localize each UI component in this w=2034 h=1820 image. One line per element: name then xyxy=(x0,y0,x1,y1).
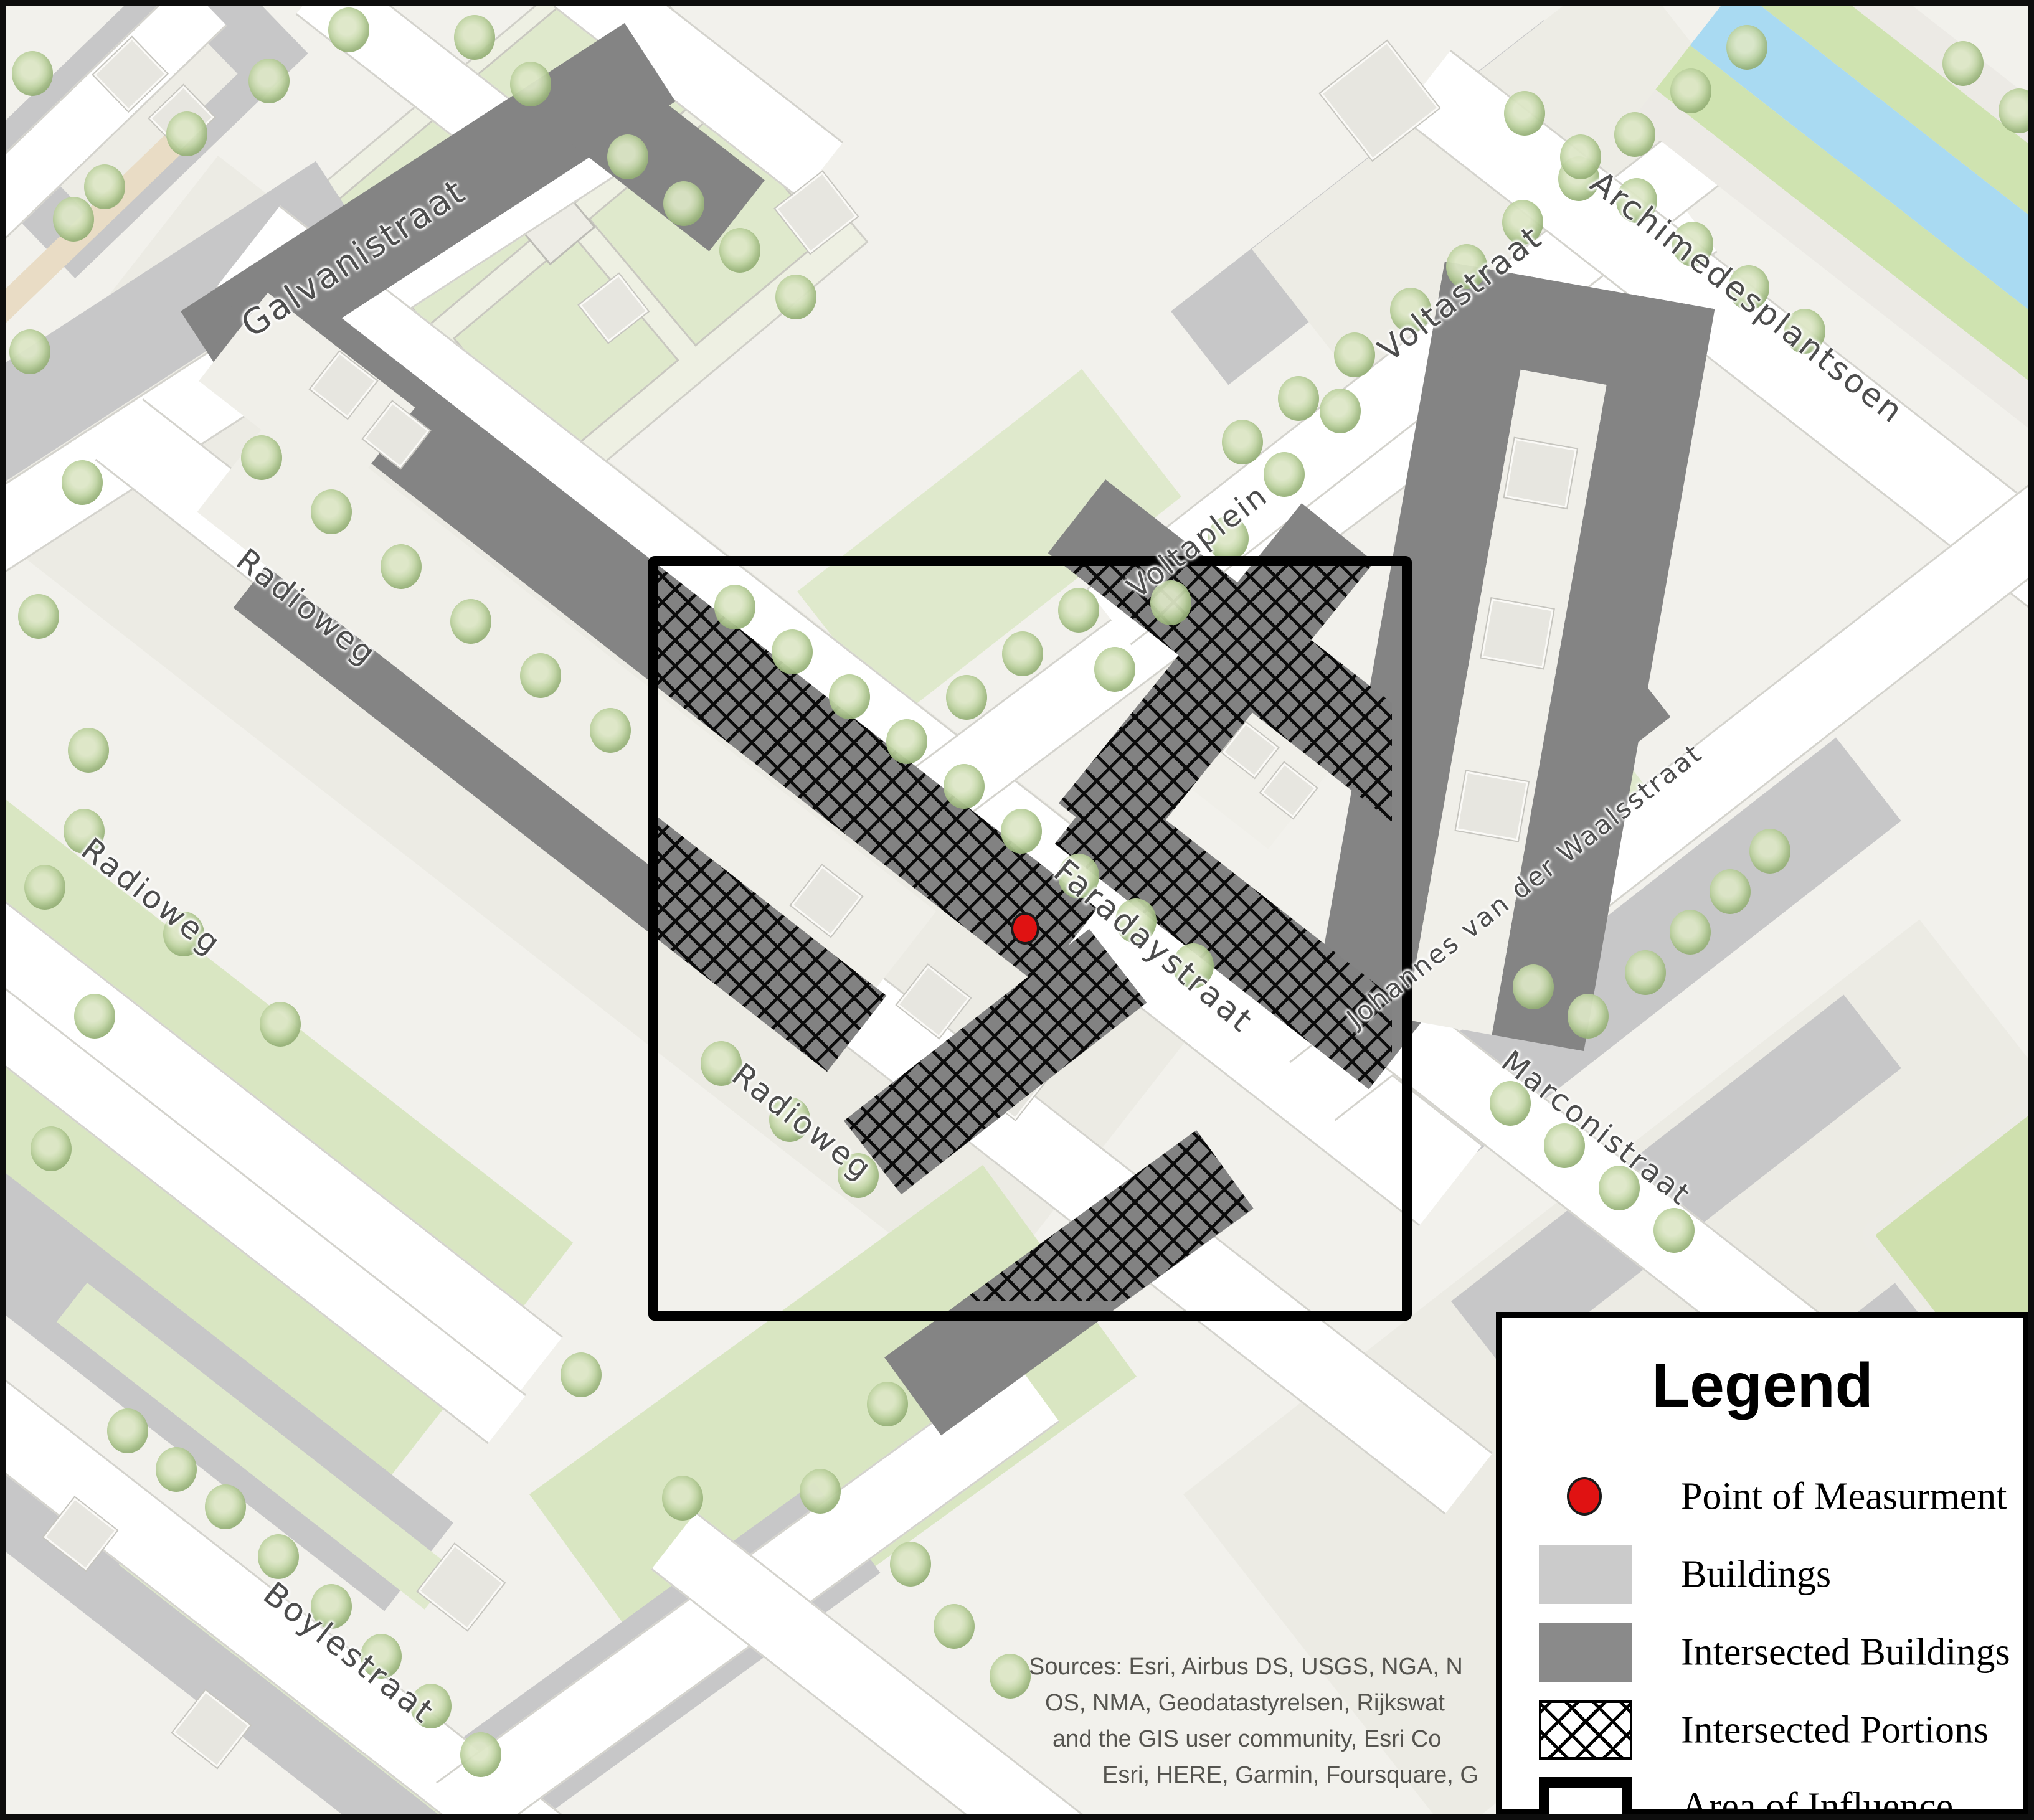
point-of-measurement-icon xyxy=(1567,1477,1602,1516)
tree-icon xyxy=(381,544,422,589)
tree-icon xyxy=(510,62,551,106)
tree-icon xyxy=(800,1469,841,1514)
tree-icon xyxy=(12,51,53,96)
tree-icon xyxy=(328,7,369,52)
tree-icon xyxy=(156,1447,197,1492)
attribution-line: Esri, HERE, Garmin, Foursquare, G xyxy=(1102,1762,1478,1789)
tree-icon xyxy=(260,1002,301,1047)
tree-icon xyxy=(1278,376,1319,421)
area-of-influence-swatch-icon xyxy=(1539,1777,1632,1820)
courtyard-building xyxy=(1505,438,1577,508)
tree-icon xyxy=(1264,452,1305,497)
tree-icon xyxy=(662,1476,703,1521)
tree-icon xyxy=(1710,869,1751,914)
legend-item-label: Area of Influence xyxy=(1681,1785,1953,1820)
tree-icon xyxy=(1942,41,1984,86)
tree-icon xyxy=(890,1542,931,1587)
tree-icon xyxy=(53,197,94,242)
map-canvas[interactable]: Sources: Esri, Airbus DS, USGS, NGA, N O… xyxy=(0,0,2034,1820)
point-of-measurement-dot xyxy=(1011,912,1039,945)
legend-item-label: Intersected Buildings xyxy=(1681,1631,2010,1675)
legend-title: Legend xyxy=(1502,1350,2023,1422)
tree-icon xyxy=(31,1126,72,1171)
tree-icon xyxy=(68,728,109,773)
tree-icon xyxy=(719,228,760,273)
tree-icon xyxy=(1749,829,1790,874)
tree-icon xyxy=(1614,112,1655,157)
legend-panel: Legend Point of Measurment Buildings Int… xyxy=(1496,1312,2029,1815)
tree-icon xyxy=(1334,332,1375,377)
tree-icon xyxy=(561,1352,602,1397)
tree-icon xyxy=(107,1408,148,1453)
tree-icon xyxy=(166,111,207,156)
courtyard-building xyxy=(1481,598,1553,668)
intersected-portions-swatch-icon xyxy=(1539,1700,1632,1760)
tree-icon xyxy=(450,599,491,644)
tree-icon xyxy=(74,994,115,1039)
intersected-buildings-swatch-icon xyxy=(1539,1623,1632,1682)
attribution-line: OS, NMA, Geodatastyrelsen, Rijkswat xyxy=(1045,1690,1445,1717)
buildings-swatch-icon xyxy=(1539,1545,1632,1604)
tree-icon xyxy=(1726,25,1767,70)
tree-icon xyxy=(1222,420,1263,464)
tree-icon xyxy=(1320,389,1361,433)
tree-icon xyxy=(663,181,704,226)
tree-icon xyxy=(1999,88,2034,133)
tree-icon xyxy=(1670,68,1711,113)
tree-icon xyxy=(84,164,125,209)
legend-item-label: Intersected Portions xyxy=(1681,1709,1989,1753)
tree-icon xyxy=(460,1732,501,1777)
attribution-line: Sources: Esri, Airbus DS, USGS, NGA, N xyxy=(1029,1654,1463,1681)
tree-icon xyxy=(205,1484,246,1529)
tree-icon xyxy=(9,329,50,374)
legend-item-label: Point of Measurment xyxy=(1681,1475,2007,1519)
attribution-line: and the GIS user community, Esri Co xyxy=(1052,1726,1441,1753)
tree-icon xyxy=(934,1604,975,1649)
tree-icon xyxy=(241,435,282,480)
tree-icon xyxy=(24,865,65,910)
tree-icon xyxy=(1504,91,1545,136)
tree-icon xyxy=(1670,910,1711,955)
tree-icon xyxy=(1568,994,1609,1039)
legend-item-label: Buildings xyxy=(1681,1553,1831,1597)
tree-icon xyxy=(258,1534,299,1579)
tree-icon xyxy=(18,594,59,639)
tree-icon xyxy=(867,1382,908,1426)
tree-icon xyxy=(607,134,648,179)
tree-icon xyxy=(775,275,816,319)
tree-icon xyxy=(1560,134,1601,179)
tree-icon xyxy=(1625,950,1666,995)
tree-icon xyxy=(248,59,290,103)
tree-icon xyxy=(520,653,561,698)
tree-icon xyxy=(454,15,495,60)
tree-icon xyxy=(311,489,352,534)
tree-icon xyxy=(590,708,631,753)
attribution: Sources: Esri, Airbus DS, USGS, NGA, N O… xyxy=(1015,1649,1496,1798)
tree-icon xyxy=(1513,964,1554,1009)
courtyard-building xyxy=(1456,771,1528,841)
tree-icon xyxy=(62,460,103,505)
tree-icon xyxy=(1653,1208,1695,1253)
